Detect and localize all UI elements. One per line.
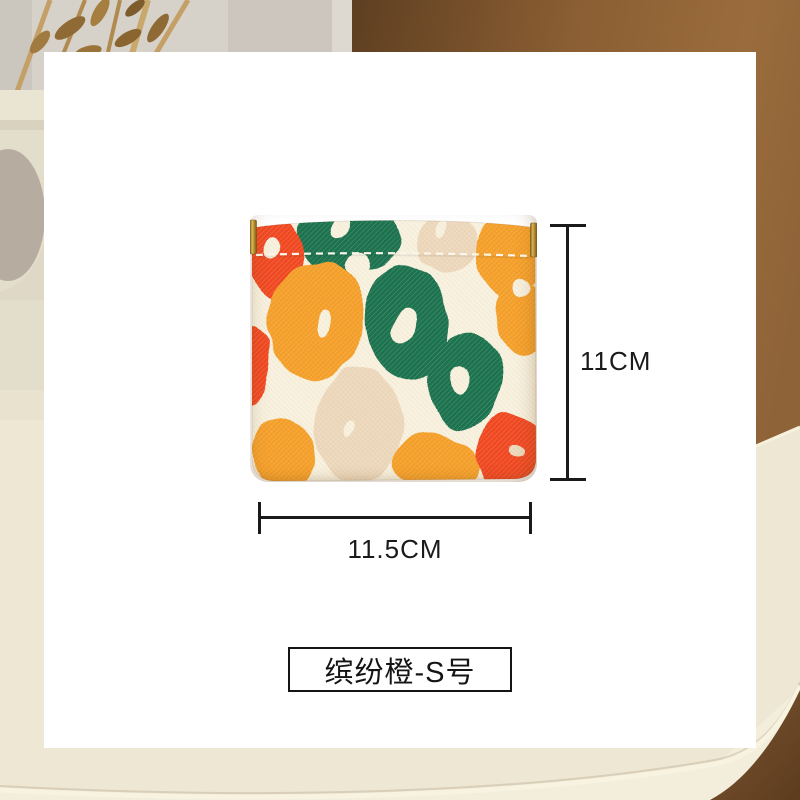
cream-chair (0, 90, 46, 420)
width-dimension-label: 11.5CM (258, 534, 532, 564)
product-photo: 11CM 11.5CM 缤纷橙-S号 (0, 0, 800, 800)
height-dimension-cap-bottom (550, 478, 586, 481)
pouch-graphic (250, 215, 537, 482)
height-dimension-line (566, 224, 569, 481)
gold-clasp-right (531, 223, 538, 257)
gold-clasp-left (250, 220, 257, 254)
variant-label: 缤纷橙-S号 (324, 649, 475, 691)
pouch-image (250, 215, 537, 482)
variant-label-box: 缤纷橙-S号 (288, 647, 512, 692)
width-dimension-line (258, 516, 532, 519)
width-dimension-cap-right (529, 502, 532, 534)
product-card: 11CM 11.5CM 缤纷橙-S号 (44, 52, 756, 748)
height-dimension-label: 11CM (580, 346, 651, 376)
